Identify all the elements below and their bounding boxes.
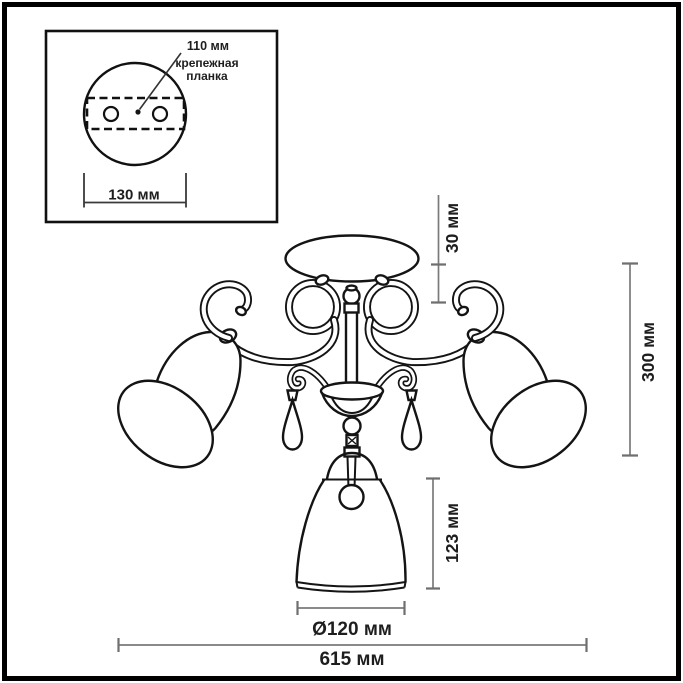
chandelier-figure <box>102 236 603 592</box>
center-shade-diameter-label: Ø120 мм <box>312 619 392 640</box>
hole-spacing-label: 110 мм <box>187 39 229 53</box>
central-bowl <box>321 383 383 417</box>
lower-scroll-left <box>283 368 330 450</box>
dimension-center-shade-diameter: Ø120 мм <box>298 601 405 640</box>
technical-drawing-page: 30 мм 300 мм 123 мм Ø120 мм 615 мм 110 м… <box>0 0 683 683</box>
bulb-stem <box>348 457 356 488</box>
dimension-center-shade-height: 123 мм <box>426 479 462 589</box>
chandelier-dimension-drawing: 30 мм 300 мм 123 мм Ø120 мм 615 мм 110 м… <box>0 0 683 683</box>
inner-scroll-left <box>289 274 337 331</box>
mounting-hole-right <box>153 107 167 121</box>
bulb <box>340 485 364 509</box>
left-shade <box>102 327 241 485</box>
dimension-canopy-height: 30 мм <box>431 195 462 303</box>
mounting-bar-label-line2: планка <box>186 69 228 83</box>
dimension-overall-width: 615 мм <box>119 638 587 670</box>
finial-collar <box>345 304 359 313</box>
overall-height-label: 300 мм <box>638 322 658 382</box>
ceiling-base-circle <box>84 63 186 165</box>
mounting-hole-left <box>104 107 118 121</box>
center-point-dot <box>135 109 140 114</box>
center-connector <box>347 435 358 446</box>
pendant-left-drop <box>283 400 302 450</box>
ceiling-canopy <box>286 236 419 282</box>
center-shade <box>297 453 406 592</box>
canopy-height-label: 30 мм <box>442 203 462 253</box>
finial-cap <box>347 286 357 291</box>
base-width-label: 130 мм <box>108 187 159 204</box>
overall-width-label: 615 мм <box>319 649 384 670</box>
center-ball <box>344 418 361 435</box>
pendant-right-drop <box>402 400 421 450</box>
mounting-inset: 110 мм крепежная планка 130 мм <box>46 31 277 222</box>
dimension-overall-height: 300 мм <box>622 264 658 456</box>
center-shade-height-label: 123 мм <box>442 503 462 563</box>
lower-scroll-right <box>374 368 421 450</box>
right-shade <box>464 327 603 485</box>
mounting-bar-label-line1: крепежная <box>175 56 238 70</box>
inner-scroll-right <box>367 274 415 331</box>
central-rod <box>346 311 357 391</box>
